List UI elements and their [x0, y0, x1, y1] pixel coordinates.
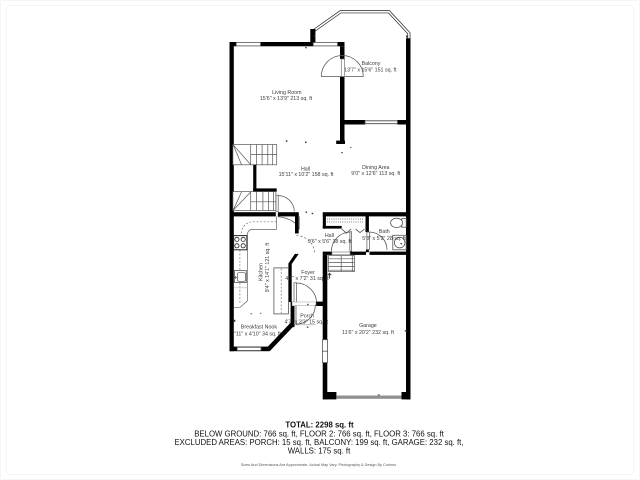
svg-text:9'4" x 14'1" 121 sq. ft: 9'4" x 14'1" 121 sq. ft: [265, 242, 271, 292]
svg-text:Porch: Porch: [300, 313, 314, 319]
svg-text:Balcony: Balcony: [362, 61, 381, 67]
svg-text:Bath: Bath: [379, 229, 390, 235]
svg-text:4'7" x 7'2" 31 sq. ft: 4'7" x 7'2" 31 sq. ft: [285, 276, 329, 282]
svg-text:WALLS: 175 sq. ft: WALLS: 175 sq. ft: [288, 447, 351, 456]
svg-text:15'6" x 13'9" 213 sq. ft: 15'6" x 13'9" 213 sq. ft: [260, 96, 313, 102]
svg-text:Garage: Garage: [359, 323, 377, 329]
svg-text:Kitchen: Kitchen: [258, 263, 264, 281]
svg-text:TOTAL: 2298 sq. ft: TOTAL: 2298 sq. ft: [285, 421, 354, 430]
svg-text:5'8" x 5'2" 28 sq. ft: 5'8" x 5'2" 28 sq. ft: [362, 236, 406, 242]
svg-text:7'11" x 4'10" 34 sq. ft: 7'11" x 4'10" 34 sq. ft: [232, 331, 282, 337]
svg-text:9'0" x 12'6" 113 sq. ft: 9'0" x 12'6" 113 sq. ft: [351, 171, 401, 177]
svg-text:Sizes And Dimensions Are Appro: Sizes And Dimensions Are Approximate, Ac…: [241, 463, 397, 467]
svg-text:11'6" x 20'2" 232 sq. ft: 11'6" x 20'2" 232 sq. ft: [342, 330, 394, 336]
svg-text:Living Room: Living Room: [272, 90, 302, 96]
svg-text:13'7" x 15'6" 151 sq. ft: 13'7" x 15'6" 151 sq. ft: [344, 68, 397, 74]
svg-text:Breakfast Nook: Breakfast Nook: [241, 325, 278, 331]
svg-text:9'6" x 5'6" 38 sq. ft: 9'6" x 5'6" 38 sq. ft: [308, 239, 352, 245]
svg-text:15'11" x 10'2" 158 sq. ft: 15'11" x 10'2" 158 sq. ft: [279, 172, 334, 178]
